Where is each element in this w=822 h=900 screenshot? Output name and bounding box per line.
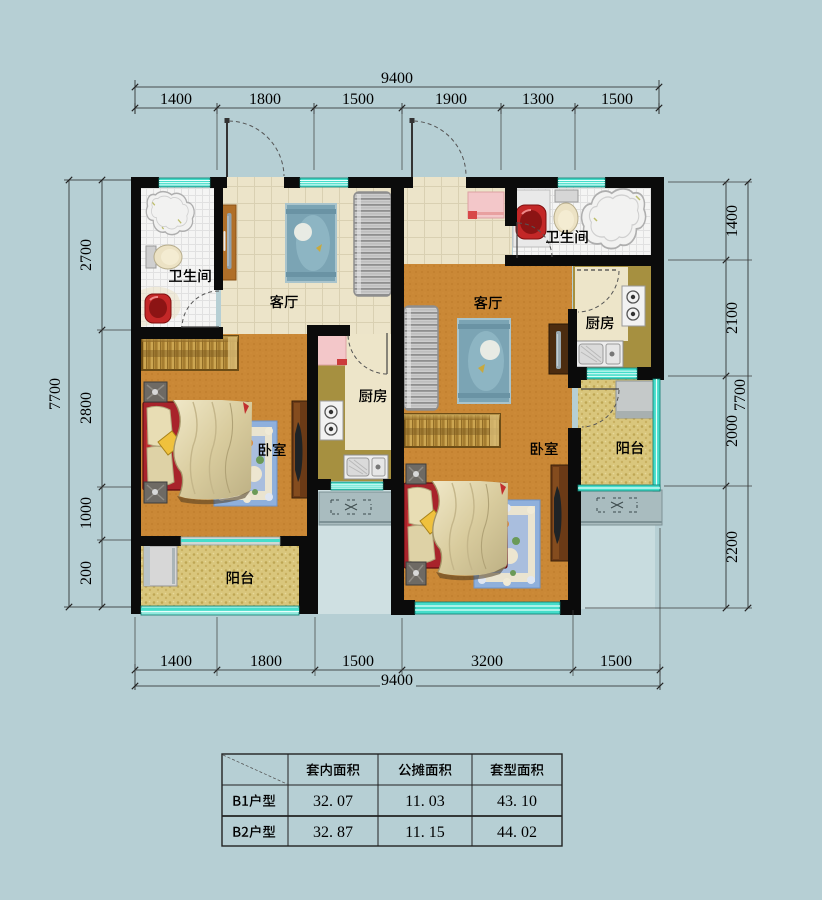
- svg-text:200: 200: [78, 561, 95, 585]
- svg-text:32. 87: 32. 87: [313, 824, 353, 841]
- svg-text:1900: 1900: [435, 91, 467, 108]
- svg-text:7700: 7700: [47, 378, 64, 410]
- svg-text:32. 07: 32. 07: [313, 793, 353, 810]
- svg-text:3200: 3200: [471, 653, 503, 670]
- svg-text:2800: 2800: [78, 392, 95, 424]
- svg-text:1000: 1000: [78, 497, 95, 529]
- svg-text:1500: 1500: [342, 653, 374, 670]
- svg-text:43. 10: 43. 10: [497, 793, 537, 810]
- svg-text:11. 03: 11. 03: [405, 793, 444, 810]
- svg-text:44. 02: 44. 02: [497, 824, 537, 841]
- svg-text:2100: 2100: [724, 302, 741, 334]
- svg-text:1800: 1800: [249, 91, 281, 108]
- svg-text:1500: 1500: [600, 653, 632, 670]
- svg-text:1400: 1400: [160, 653, 192, 670]
- svg-text:1300: 1300: [522, 91, 554, 108]
- svg-text:1500: 1500: [342, 91, 374, 108]
- svg-text:11. 15: 11. 15: [405, 824, 444, 841]
- svg-text:2200: 2200: [724, 531, 741, 563]
- svg-text:1800: 1800: [250, 653, 282, 670]
- svg-text:2000: 2000: [724, 415, 741, 447]
- svg-text:9400: 9400: [381, 70, 413, 87]
- svg-text:7700: 7700: [732, 379, 749, 411]
- svg-text:2700: 2700: [78, 239, 95, 271]
- svg-text:1500: 1500: [601, 91, 633, 108]
- svg-text:1400: 1400: [160, 91, 192, 108]
- svg-text:1400: 1400: [724, 205, 741, 237]
- svg-text:9400: 9400: [381, 672, 413, 689]
